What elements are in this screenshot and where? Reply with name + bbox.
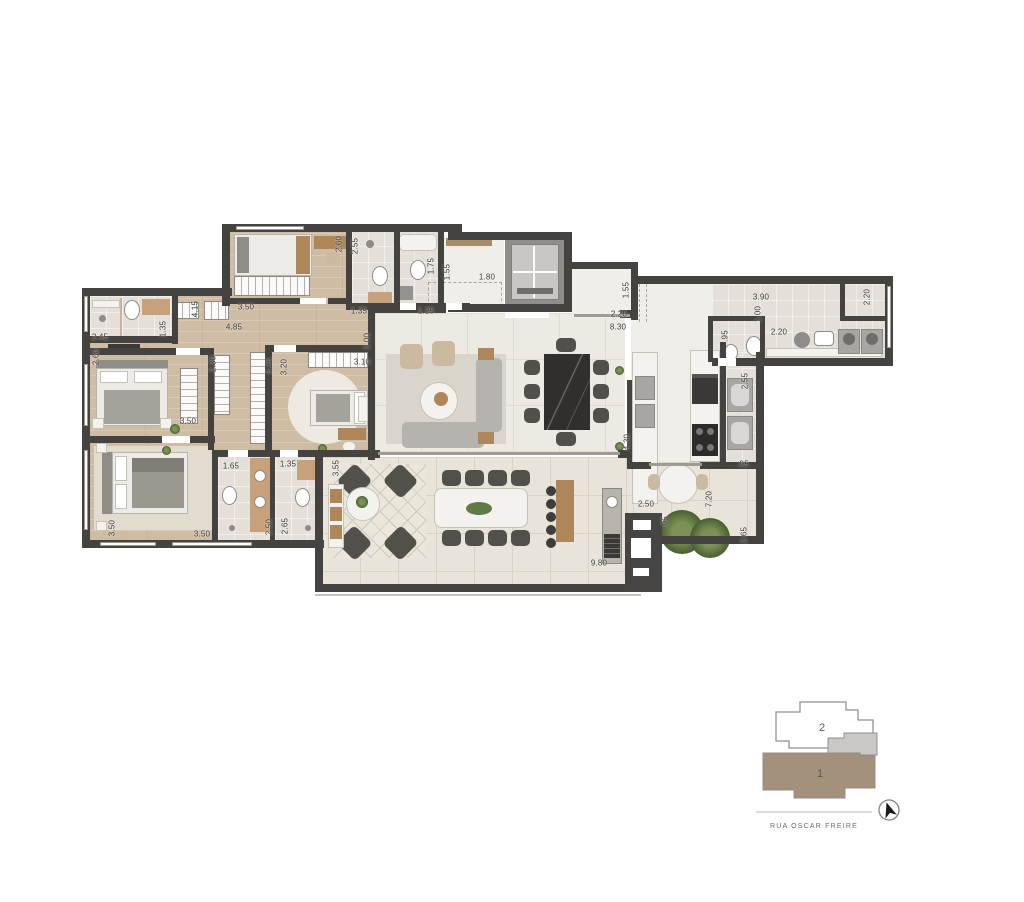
wall (368, 306, 375, 460)
plant (162, 446, 171, 455)
bed-headboard (102, 452, 112, 514)
shower-glass (120, 298, 122, 338)
window (84, 364, 88, 426)
wall (448, 232, 572, 240)
unit-1-label: 1 (817, 768, 823, 780)
dimension-label: 1.35 (280, 460, 296, 469)
dining-chair (593, 408, 609, 423)
chair (511, 530, 530, 546)
chair (511, 470, 530, 486)
bar-stool (546, 525, 556, 535)
bench-cushion (330, 525, 342, 539)
dimension-label: 2.60 (335, 236, 344, 252)
plant (615, 366, 624, 375)
dimension-label: .95 (661, 516, 670, 528)
dimension-label: 1.35 (159, 321, 168, 337)
tray (434, 392, 448, 406)
plant (356, 496, 368, 508)
vanity (142, 299, 170, 315)
sliding-door (649, 463, 702, 466)
appliance-door (731, 422, 749, 444)
wall (315, 452, 323, 592)
dimension-label: 1.75 (427, 258, 436, 274)
dimension-label: 3.50 (194, 530, 210, 539)
oven (692, 374, 718, 404)
wall (756, 352, 764, 544)
burner (707, 444, 714, 451)
centerpiece (466, 502, 492, 515)
wall (760, 316, 765, 360)
wall (328, 298, 352, 304)
dimension-label: 2.65 (281, 518, 290, 534)
wall (448, 304, 572, 312)
block-slot (633, 568, 649, 576)
dimension-label: 1.35 (351, 307, 367, 316)
sofa (476, 358, 502, 432)
window (236, 226, 304, 230)
dimension-label: 3.10 (354, 358, 370, 367)
window (84, 296, 88, 332)
chair (442, 470, 461, 486)
toilet (372, 266, 388, 286)
sink (254, 470, 266, 482)
desk (338, 428, 366, 440)
door-opening (274, 345, 296, 352)
unit-2-label: 2 (819, 722, 825, 734)
dimension-label: 2.45 (92, 333, 108, 342)
burner (696, 444, 703, 451)
window (100, 542, 156, 546)
wall (840, 316, 890, 321)
wall (638, 276, 893, 284)
chair (465, 530, 484, 546)
bar-stool (546, 486, 556, 496)
wall (840, 284, 845, 320)
dimension-label: 2.55 (351, 238, 360, 254)
wall (394, 228, 400, 310)
dimension-label: 3.55 (332, 460, 341, 476)
bar-stool (546, 499, 556, 509)
dimension-label: 8.30 (610, 323, 626, 332)
sliding-door (378, 452, 620, 455)
burner (696, 428, 703, 435)
bed-blanket (316, 394, 350, 422)
bar-stool (546, 538, 556, 548)
shower-drain (229, 525, 235, 531)
grill (604, 534, 620, 558)
wall (627, 380, 632, 464)
dimension-label: 4.85 (226, 323, 242, 332)
dimension-label: 2.50 (265, 519, 274, 535)
laundry-tub (814, 331, 834, 346)
wall (564, 232, 572, 312)
bed-pillow (115, 456, 127, 481)
north-arrow-icon (876, 797, 901, 822)
door-opening (228, 450, 248, 457)
toilet (222, 486, 237, 505)
wall (315, 584, 641, 592)
breakfast-table (658, 464, 698, 504)
chair (442, 530, 461, 546)
window (887, 286, 891, 348)
dimension-label: 1.00 (363, 333, 372, 349)
dining-chair (556, 338, 576, 352)
bed-pillow (100, 371, 128, 383)
nightstand (92, 418, 104, 429)
dimension-label: 1.65 (223, 462, 239, 471)
bench-cushion (330, 507, 342, 521)
chair (488, 530, 507, 546)
dimension-label: 3.25 (265, 358, 274, 374)
dimension-label: 2.60 (92, 349, 101, 365)
dimension-label: 2.30 (209, 356, 218, 372)
dimension-label: 2.20 (611, 310, 627, 319)
side-table (478, 432, 494, 444)
dimension-label: 1.00 (754, 306, 763, 322)
bed-blanket (104, 390, 160, 424)
dashed-line (646, 284, 648, 322)
elevator-door-line-h (513, 271, 557, 273)
nightstand (96, 521, 107, 531)
bbq-sink (606, 496, 618, 508)
shower-drain (366, 240, 374, 248)
burner (707, 428, 714, 435)
shelf (358, 396, 368, 422)
dimension-label: 2.20 (863, 289, 872, 305)
shelf (92, 300, 120, 308)
dimension-label: 1.55 (443, 264, 452, 280)
dimension-label: 3.90 (753, 293, 769, 302)
door-opening (162, 436, 190, 443)
door-opening (446, 303, 462, 310)
kitchen-sink (635, 404, 655, 428)
shower-drain (99, 315, 106, 322)
dryer-door (866, 333, 878, 345)
bar-stool (546, 512, 556, 522)
kitchen-sink (635, 376, 655, 400)
closet (234, 276, 310, 296)
armchair (400, 344, 423, 369)
key-plan: 2 1 RUA OSCAR FREIRE (752, 692, 912, 842)
dining-chair (524, 360, 540, 375)
washer-door (843, 333, 855, 345)
door-opening (176, 348, 200, 355)
plant (170, 424, 180, 434)
vanity (297, 460, 315, 480)
dimension-label: 1.80 (479, 273, 495, 282)
dimension-label: 2.65 (740, 527, 749, 543)
toilet (295, 488, 310, 507)
wall (222, 298, 304, 304)
dimension-label: 3.50 (238, 303, 254, 312)
shower-drain (305, 525, 311, 531)
toilet (124, 300, 140, 320)
side-table (478, 348, 494, 360)
bathtub (399, 234, 437, 251)
bed-blanket-fold (132, 458, 184, 472)
door-opening (280, 450, 298, 457)
dimension-label: 7.20 (705, 491, 714, 507)
dining-chair (524, 384, 540, 399)
dining-table (544, 354, 590, 430)
dimension-label: .95 (737, 460, 749, 469)
toilet (410, 260, 426, 280)
bench-cushion (330, 489, 342, 503)
nightstand (96, 443, 107, 453)
block-slot (631, 538, 651, 558)
dimension-label: 2.55 (741, 373, 750, 389)
wall (712, 358, 893, 366)
block-slot (633, 520, 651, 530)
door-opening (300, 298, 326, 304)
dimension-label: 4.30 (623, 434, 632, 450)
elevator-recess (505, 312, 549, 318)
chair (648, 474, 660, 490)
bed-pillow (237, 237, 249, 273)
door-opening (718, 358, 736, 366)
dimension-label: 3.20 (280, 359, 289, 375)
chair (696, 474, 708, 490)
bar-counter (556, 480, 574, 542)
dining-chair (556, 432, 576, 446)
street-label: RUA OSCAR FREIRE (770, 823, 858, 830)
dimension-label: 1.55 (622, 282, 631, 298)
dimension-label: 9.80 (591, 559, 607, 568)
window (172, 542, 252, 546)
dimension-label: 2.20 (771, 328, 787, 337)
elevator-sill (517, 288, 553, 294)
wall (708, 316, 713, 362)
terrace-edge-trim (315, 594, 641, 596)
floor-plan: 2.602.553.501.354.852.452.601.354.152.30… (0, 0, 1024, 902)
bed-blanket (296, 236, 310, 274)
chair (465, 470, 484, 486)
dimension-label: 3.50 (108, 520, 117, 536)
bed-pillow (134, 371, 162, 383)
laundry-sink (794, 332, 810, 348)
sink (254, 496, 266, 508)
dimension-label: 1.25 (418, 307, 434, 316)
dimension-label: 4.15 (191, 301, 200, 317)
dining-chair (524, 408, 540, 423)
dimension-label: 2.50 (638, 500, 654, 509)
shower (399, 286, 413, 300)
dimension-label: .95 (721, 330, 730, 342)
wall (700, 462, 762, 469)
dining-chair (593, 360, 609, 375)
bed-pillow (115, 484, 127, 509)
chair (488, 470, 507, 486)
wall (568, 262, 638, 269)
dimension-label: 3.50 (180, 417, 196, 426)
door-opening (400, 303, 416, 310)
wall (82, 288, 232, 296)
desk-chair (326, 252, 340, 264)
wall (212, 450, 218, 546)
armchair (432, 341, 455, 366)
dining-chair (593, 384, 609, 399)
window (84, 450, 88, 530)
dashed-line (639, 284, 641, 322)
wall (82, 436, 215, 443)
sofa (402, 422, 484, 448)
